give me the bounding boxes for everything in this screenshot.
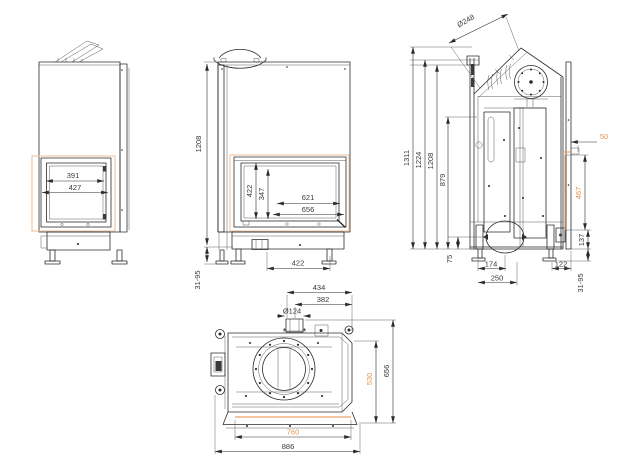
base-and-feet	[41, 232, 127, 264]
dim-label-75: 75	[445, 255, 454, 263]
front-apron	[223, 412, 357, 428]
dim-label-879: 879	[438, 174, 447, 187]
dim-label-656-front: 656	[302, 205, 315, 214]
dim-label-391: 391	[67, 171, 80, 180]
dim-label-1208-front: 1208	[194, 136, 203, 153]
view-front-main: 1208 31-95 422 347 621 656 422	[193, 49, 350, 289]
base-and-feet	[216, 232, 344, 264]
dim-label-flue-248: Ø248	[456, 12, 476, 29]
dim-label-422-vertical: 422	[245, 185, 254, 198]
dim-label-427: 427	[69, 183, 82, 192]
dimensions-front-main: 1208 31-95 422 347 621 656 422	[193, 62, 344, 290]
flue-opening-circle	[245, 338, 323, 400]
body-outline-top	[211, 326, 353, 412]
fan-housing	[514, 66, 548, 108]
flue-stub-diagonals	[55, 41, 103, 62]
dim-label-collar-124: Ø124	[283, 307, 301, 316]
dim-label-1311: 1311	[402, 150, 411, 166]
dim-label-467: 467	[574, 187, 583, 200]
dim-label-3195-front: 31-95	[193, 270, 202, 289]
back-panel	[561, 62, 579, 249]
dim-label-886: 886	[282, 442, 295, 451]
dim-label-434: 434	[313, 283, 326, 292]
dimensions-side: Ø248 1311 1224 1208 879 75 174 250 122 1…	[402, 12, 608, 292]
collar-spigot	[283, 319, 328, 336]
top-dome-bowl	[214, 49, 266, 68]
front-column	[467, 56, 479, 249]
dim-label-3195-side: 31-95	[576, 273, 585, 292]
dim-label-621: 621	[302, 193, 315, 202]
view-side: Ø248 1311 1224 1208 879 75 174 250 122 1…	[402, 12, 608, 292]
technical-drawing-page: 391 427	[0, 0, 624, 460]
dim-label-1224: 1224	[414, 152, 423, 169]
dim-label-347: 347	[257, 188, 266, 201]
dim-label-137: 137	[577, 234, 586, 247]
interior-panels	[476, 107, 546, 247]
dim-label-760: 760	[287, 428, 300, 437]
fireplace-dimension-drawing: 391 427	[0, 0, 624, 460]
dim-label-174: 174	[485, 260, 498, 269]
dim-label-250: 250	[491, 274, 504, 283]
dim-label-50: 50	[600, 132, 608, 141]
door-highlight-outline	[32, 156, 115, 231]
dim-label-656-depth: 656	[382, 365, 391, 378]
dimensions-front-left: 391 427	[42, 171, 108, 193]
view-front-left: 391 427	[32, 41, 129, 264]
dim-label-1208-side: 1208	[426, 153, 435, 170]
door-edge-highlight	[563, 152, 571, 230]
dim-label-122: 122	[555, 260, 568, 269]
body-outline	[218, 62, 350, 232]
dim-label-422-bottom: 422	[292, 259, 305, 268]
dim-label-530: 530	[365, 373, 374, 386]
dim-label-382: 382	[317, 295, 330, 304]
view-top: 434 382 Ø124 656 530 760 886	[211, 283, 396, 454]
